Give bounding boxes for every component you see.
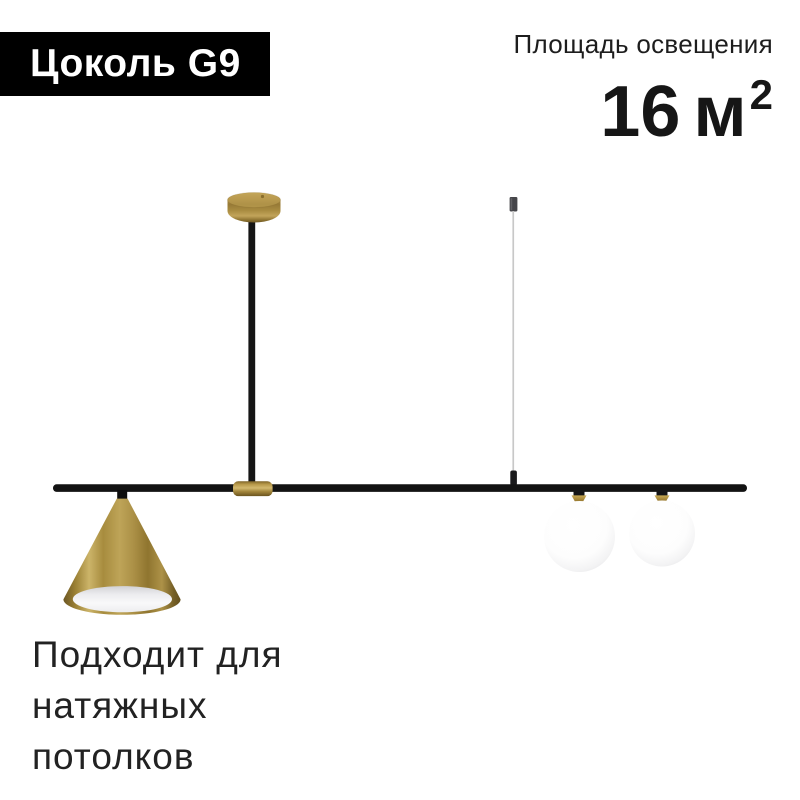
note-line-2: натяжных	[32, 680, 283, 731]
glass-sphere-right	[629, 501, 695, 567]
horizontal-bar	[53, 484, 747, 492]
sphere-right-mount	[657, 490, 668, 496]
cone-opening	[73, 586, 172, 612]
sphere-left-mount	[574, 490, 585, 496]
product-card: Цоколь G9 Площадь освещения 16м2	[0, 0, 800, 800]
note-line-3: потолков	[32, 731, 283, 782]
canopy-screw	[261, 195, 264, 198]
brass-sleeve	[233, 481, 273, 496]
canopy-top-rim	[228, 193, 281, 208]
glass-sphere-left	[544, 501, 615, 572]
wire-top-fitting-highlight	[511, 198, 513, 210]
suitability-note: Подходит для натяжных потолков	[32, 629, 283, 782]
vertical-rod	[248, 206, 255, 484]
cone-mount	[117, 490, 127, 499]
suspension-wire	[512, 211, 514, 473]
note-line-1: Подходит для	[32, 629, 283, 680]
wire-bottom-fitting	[510, 471, 517, 486]
